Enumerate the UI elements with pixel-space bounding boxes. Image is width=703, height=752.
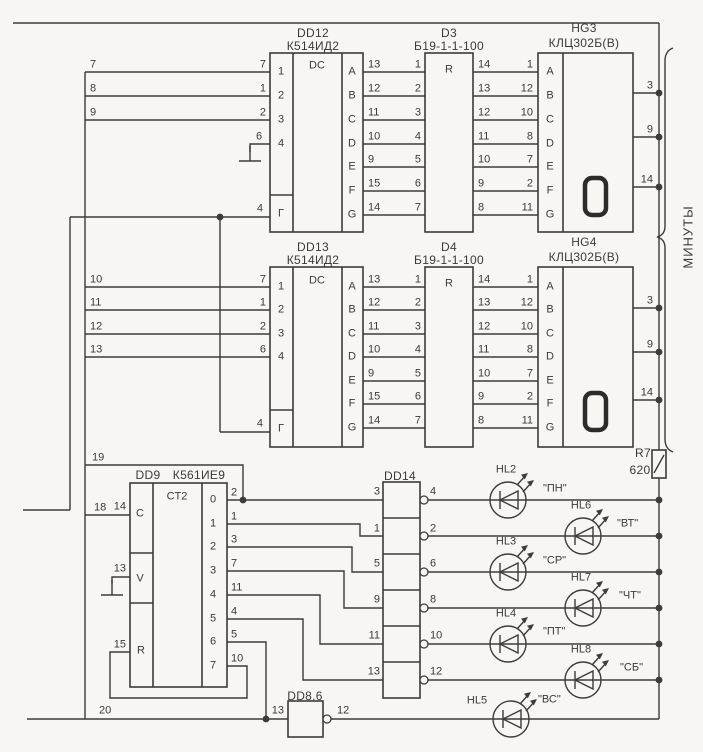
d3-ref: D3 bbox=[441, 27, 457, 39]
pin-number: 4 bbox=[257, 204, 263, 215]
output-number: 1 bbox=[210, 519, 216, 530]
seg-letter: E bbox=[348, 162, 355, 173]
led-hl7-ref: HL7 bbox=[571, 573, 591, 584]
pin-number: 13 bbox=[114, 564, 126, 575]
func-label: DC bbox=[309, 276, 325, 287]
pin-number: 1 bbox=[374, 524, 380, 535]
gate-wire bbox=[23, 217, 270, 510]
seg-letter: G bbox=[348, 423, 357, 434]
dd12-ground-stub bbox=[250, 144, 270, 152]
input-number: 2 bbox=[278, 305, 284, 316]
pin-number: 7 bbox=[260, 275, 266, 286]
pin-number: 13 bbox=[368, 667, 380, 678]
pin-number: 15 bbox=[368, 392, 380, 403]
pin-number: 5 bbox=[415, 369, 421, 380]
pin-number: 2 bbox=[415, 84, 421, 95]
pin-number: 13 bbox=[272, 706, 284, 717]
pin-number: 4 bbox=[415, 132, 421, 143]
func-label: CT2 bbox=[167, 492, 188, 503]
pin-number: 6 bbox=[430, 559, 436, 570]
pin-number: 2 bbox=[260, 108, 266, 119]
pin-number: 4 bbox=[430, 487, 436, 498]
seg-letter: F bbox=[349, 399, 356, 410]
pin-number: 9 bbox=[374, 595, 380, 606]
dd9-v-ground-stub bbox=[112, 577, 130, 584]
output-number: 4 bbox=[210, 590, 216, 601]
supply-rails bbox=[13, 23, 659, 719]
pin-number: 15 bbox=[114, 640, 126, 651]
dd13-ref: DD13 bbox=[297, 241, 329, 253]
input-number: 4 bbox=[278, 352, 284, 363]
seg-letter: E bbox=[348, 376, 355, 387]
pin-number: 12 bbox=[430, 667, 442, 678]
func-label: R bbox=[445, 65, 453, 76]
pin-number: 2 bbox=[415, 298, 421, 309]
pin-number: 1 bbox=[260, 84, 266, 95]
seg-letter: A bbox=[546, 282, 553, 293]
seg-letter: B bbox=[348, 91, 355, 102]
pin-number: 5 bbox=[374, 559, 380, 570]
seg-letter: G bbox=[348, 210, 357, 221]
pin-number: 6 bbox=[415, 179, 421, 190]
pin-number: 11 bbox=[368, 322, 379, 333]
pin-number: 6 bbox=[256, 132, 262, 143]
pin-number: 3 bbox=[647, 81, 653, 92]
pin-number: 4 bbox=[231, 607, 237, 618]
ground-icon bbox=[101, 580, 123, 595]
led-hl4-ref: HL4 bbox=[496, 609, 516, 620]
pin-number: 12 bbox=[337, 706, 349, 717]
schematic-page: DD12 К514ИД2 D3 Б19-1-1-100 HG3 КЛЦ302Б(… bbox=[0, 0, 703, 752]
pin-number: 8 bbox=[527, 345, 533, 356]
pin-number: 7 bbox=[260, 60, 266, 71]
led-hl5-label: "ВС" bbox=[538, 695, 561, 706]
pin-number: 13 bbox=[368, 275, 380, 286]
dd9-dd14-wires bbox=[227, 500, 383, 719]
seg-letter: A bbox=[348, 67, 355, 78]
led-hl5-icon bbox=[493, 692, 537, 737]
led-hl2-ref: HL2 bbox=[496, 465, 516, 476]
led-hl3-icon bbox=[490, 545, 534, 590]
seg-letter: B bbox=[546, 305, 553, 316]
input-number: 3 bbox=[278, 115, 284, 126]
gate-label: Г bbox=[278, 424, 284, 435]
pin-number: 8 bbox=[527, 132, 533, 143]
pin-number: 9 bbox=[647, 340, 653, 351]
seg-letter: C bbox=[348, 115, 356, 126]
seg-letter: F bbox=[547, 186, 554, 197]
led-hl2-icon bbox=[490, 473, 534, 518]
pin-number: 2 bbox=[231, 488, 237, 499]
input-number: 1 bbox=[278, 282, 284, 293]
pin-number: 7 bbox=[231, 559, 237, 570]
seg-letter: B bbox=[348, 305, 355, 316]
wire-number: 20 bbox=[99, 706, 111, 717]
junction-dots bbox=[217, 90, 663, 723]
d4-type: Б19-1-1-100 bbox=[414, 254, 484, 266]
d4-body bbox=[425, 267, 473, 447]
hg4-digit-zero bbox=[585, 393, 606, 430]
seg-letter: A bbox=[348, 282, 355, 293]
pin-number: 9 bbox=[368, 155, 374, 166]
pin-number: 13 bbox=[478, 298, 490, 309]
pin-number: 10 bbox=[368, 132, 380, 143]
hg3-type: КЛЦ302Б(В) bbox=[549, 37, 620, 49]
pin-number: 1 bbox=[260, 298, 266, 309]
pin-number: 7 bbox=[415, 203, 421, 214]
led-hl8-ref: HL8 bbox=[571, 645, 591, 656]
pin-number: 1 bbox=[527, 275, 533, 286]
pin-number: 1 bbox=[231, 512, 237, 523]
seg-letter: D bbox=[546, 139, 554, 150]
r7-value: 620 bbox=[630, 464, 651, 476]
input-number: 4 bbox=[278, 139, 284, 150]
seg-letter: C bbox=[546, 115, 554, 126]
func-label: DC bbox=[309, 61, 325, 72]
wires bbox=[13, 23, 659, 719]
wire-number: 11 bbox=[90, 298, 101, 309]
pin-number: 5 bbox=[415, 155, 421, 166]
hg3-ref: HG3 bbox=[571, 22, 597, 34]
input-letter: C bbox=[136, 509, 144, 520]
pin-number: 3 bbox=[374, 487, 380, 498]
seg-letter: G bbox=[546, 210, 555, 221]
led-hl4-label: "ПТ" bbox=[543, 627, 565, 638]
pin-number: 2 bbox=[260, 322, 266, 333]
pin-number: 9 bbox=[478, 392, 484, 403]
led-hl3-label: "СР" bbox=[543, 556, 566, 567]
wire-number: 19 bbox=[92, 453, 104, 464]
pin-number: 3 bbox=[415, 108, 421, 119]
led-hl3-ref: HL3 bbox=[496, 537, 516, 548]
dd13-input-wires bbox=[85, 287, 270, 357]
wire-number: 7 bbox=[90, 60, 96, 71]
dd12-input-wires bbox=[85, 72, 270, 120]
wire-number: 18 bbox=[94, 503, 106, 514]
pin-number: 15 bbox=[368, 179, 380, 190]
d3-body bbox=[425, 53, 473, 232]
input-number: 2 bbox=[278, 91, 284, 102]
led-hl6-ref: HL6 bbox=[571, 501, 591, 512]
output-number: 2 bbox=[210, 542, 216, 553]
output-number: 6 bbox=[210, 637, 216, 648]
input-letter: R bbox=[137, 646, 145, 657]
hg3-digit-zero bbox=[585, 178, 606, 215]
led-hl8-label: "СБ" bbox=[620, 663, 643, 674]
func-label: R bbox=[445, 279, 453, 290]
dd9-ref: DD9 bbox=[136, 469, 161, 481]
output-number: 7 bbox=[210, 661, 216, 672]
pin-number: 10 bbox=[478, 369, 490, 380]
seg-letter: D bbox=[348, 139, 356, 150]
led-hl2-label: "ПН" bbox=[543, 484, 567, 495]
pin-number: 1 bbox=[527, 60, 533, 71]
dd12-ref: DD12 bbox=[297, 27, 329, 39]
pin-number: 3 bbox=[231, 535, 237, 546]
ground-symbols bbox=[101, 146, 261, 595]
seg-letter: F bbox=[349, 186, 356, 197]
pin-number: 11 bbox=[231, 583, 242, 594]
pin-number: 12 bbox=[368, 298, 380, 309]
pin-number: 9 bbox=[647, 125, 653, 136]
pin-number: 10 bbox=[478, 155, 490, 166]
ground-icon bbox=[239, 146, 261, 161]
pin-number: 3 bbox=[415, 322, 421, 333]
pin-number: 12 bbox=[521, 84, 533, 95]
input-number: 3 bbox=[278, 329, 284, 340]
pin-number: 7 bbox=[527, 155, 533, 166]
led-hl8-icon bbox=[565, 653, 609, 698]
led-hl7-label: "ЧТ" bbox=[619, 591, 641, 602]
dd12-type: К514ИД2 bbox=[287, 40, 340, 52]
pin-number: 5 bbox=[231, 630, 237, 641]
dd86-ref: DD8.6 bbox=[287, 690, 323, 702]
r7-ref: R7 bbox=[635, 447, 651, 459]
seg-letter: C bbox=[546, 329, 554, 340]
pin-number: 9 bbox=[478, 179, 484, 190]
pin-number: 10 bbox=[231, 654, 243, 665]
pin-number: 14 bbox=[478, 60, 490, 71]
seg-letter: C bbox=[348, 329, 356, 340]
wire-number: 9 bbox=[90, 108, 96, 119]
output-number: 3 bbox=[210, 566, 216, 577]
dd86-body bbox=[288, 701, 323, 737]
seg-letter: B bbox=[546, 91, 553, 102]
pin-number: 7 bbox=[527, 369, 533, 380]
pin-number: 14 bbox=[478, 275, 490, 286]
pin-number: 14 bbox=[368, 416, 380, 427]
pin-number: 11 bbox=[369, 631, 380, 642]
pin-number: 14 bbox=[641, 388, 653, 399]
group-label-minutes: МИНУТЫ bbox=[681, 205, 696, 268]
pin-number: 12 bbox=[478, 108, 490, 119]
pin-number: 14 bbox=[641, 175, 653, 186]
pin-number: 6 bbox=[260, 345, 266, 356]
seg-letter: E bbox=[546, 376, 553, 387]
wire-number: 12 bbox=[90, 322, 102, 333]
pin-number: 2 bbox=[527, 392, 533, 403]
pin-number: 8 bbox=[478, 416, 484, 427]
pin-number: 4 bbox=[415, 345, 421, 356]
pin-number: 11 bbox=[522, 416, 533, 427]
led-hl6-label: "ВТ" bbox=[617, 519, 638, 530]
pin-number: 3 bbox=[647, 296, 653, 307]
pin-number: 10 bbox=[430, 631, 442, 642]
pin-number: 13 bbox=[368, 60, 380, 71]
pin-number: 6 bbox=[415, 392, 421, 403]
pin-number: 2 bbox=[430, 524, 436, 535]
output-number: 5 bbox=[210, 614, 216, 625]
led-hl6-icon bbox=[565, 509, 609, 554]
hg4-type: КЛЦ302Б(В) bbox=[549, 251, 620, 263]
pin-number: 4 bbox=[257, 419, 263, 430]
hg4-ref: HG4 bbox=[571, 236, 597, 248]
pin-number: 14 bbox=[368, 203, 380, 214]
pin-number: 8 bbox=[478, 203, 484, 214]
pin-number: 12 bbox=[521, 298, 533, 309]
pin-number: 14 bbox=[114, 502, 126, 513]
pin-number: 10 bbox=[521, 322, 533, 333]
seg-letter: F bbox=[547, 399, 554, 410]
pin-number: 9 bbox=[368, 369, 374, 380]
gate-label: Г bbox=[278, 209, 284, 220]
pin-number: 1 bbox=[415, 275, 421, 286]
seg-letter: D bbox=[546, 352, 554, 363]
led-hl5-ref: HL5 bbox=[467, 696, 487, 707]
led-hl4-icon bbox=[490, 617, 534, 662]
pin-number: 2 bbox=[527, 179, 533, 190]
pin-number: 12 bbox=[478, 322, 490, 333]
wire-number: 8 bbox=[90, 84, 96, 95]
pin-number: 12 bbox=[368, 84, 380, 95]
seg-letter: D bbox=[348, 352, 356, 363]
dd9-type: К561ИЕ9 bbox=[173, 469, 225, 481]
dd14-ref: DD14 bbox=[384, 470, 416, 482]
pin-number: 13 bbox=[478, 84, 490, 95]
led-hl7-icon bbox=[565, 581, 609, 626]
pin-number: 10 bbox=[368, 345, 380, 356]
wire-number: 10 bbox=[90, 275, 102, 286]
pin-number: 7 bbox=[415, 416, 421, 427]
wire-number: 13 bbox=[90, 345, 102, 356]
seg-letter: E bbox=[546, 162, 553, 173]
pin-number: 8 bbox=[430, 595, 436, 606]
input-letter: V bbox=[136, 574, 143, 585]
d3-type: Б19-1-1-100 bbox=[414, 40, 484, 52]
input-number: 1 bbox=[278, 67, 284, 78]
pin-number: 11 bbox=[478, 345, 489, 356]
pin-number: 11 bbox=[368, 108, 379, 119]
pin-number: 10 bbox=[521, 108, 533, 119]
seg-letter: A bbox=[546, 67, 553, 78]
seg-letter: G bbox=[546, 423, 555, 434]
output-number: 0 bbox=[210, 495, 216, 506]
seven-segment-digits bbox=[585, 178, 606, 430]
pin-number: 1 bbox=[415, 60, 421, 71]
pin-number: 11 bbox=[522, 203, 533, 214]
d4-ref: D4 bbox=[441, 241, 457, 253]
pin-number: 11 bbox=[478, 132, 489, 143]
dd13-type: К514ИД2 bbox=[287, 254, 340, 266]
